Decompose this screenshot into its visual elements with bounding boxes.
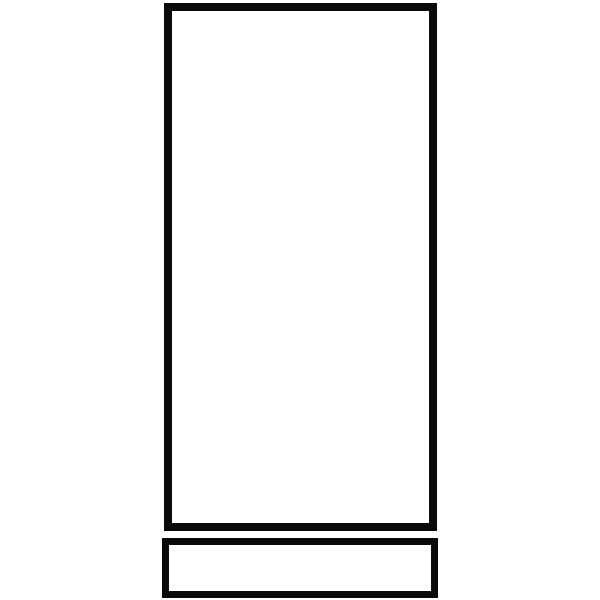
base-rectangle-outline bbox=[162, 538, 438, 598]
drawing-canvas bbox=[0, 0, 600, 600]
tall-rectangle-outline bbox=[164, 3, 437, 531]
